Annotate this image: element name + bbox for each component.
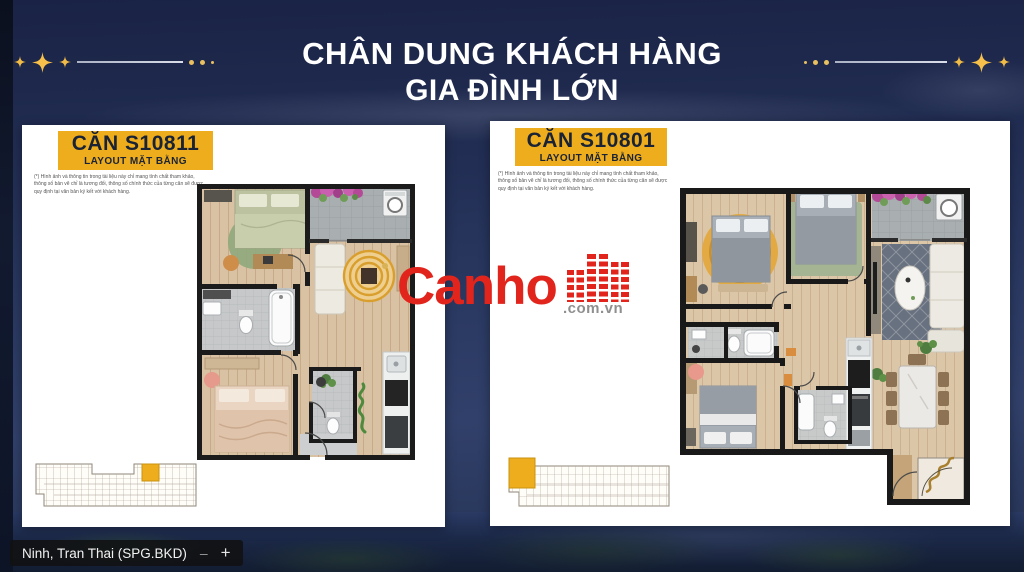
layout-label: LAYOUT MẶT BẰNG bbox=[540, 154, 643, 165]
star-icon bbox=[998, 56, 1010, 68]
unit-code: CĂN S10801 bbox=[527, 130, 656, 152]
bathtub bbox=[269, 290, 294, 346]
decoration-dot bbox=[824, 60, 829, 65]
decoration-dot bbox=[189, 60, 194, 65]
toilet bbox=[728, 329, 741, 352]
decoration-line bbox=[77, 61, 183, 63]
entry-floor bbox=[300, 434, 357, 455]
floor-plan-s10801 bbox=[680, 188, 970, 505]
unit-code: CĂN S10811 bbox=[72, 133, 200, 155]
coffee-table bbox=[361, 268, 377, 284]
laptop bbox=[263, 256, 273, 264]
canho-brand-text: Canho bbox=[397, 258, 557, 316]
wardrobe bbox=[685, 222, 697, 262]
shelf bbox=[203, 290, 231, 299]
canho-suffix-text: .com.vn bbox=[563, 300, 623, 317]
star-icon bbox=[971, 52, 992, 73]
wardrobe bbox=[204, 190, 232, 202]
bed bbox=[712, 216, 770, 282]
bedroom-2 bbox=[788, 192, 865, 276]
desk bbox=[686, 276, 697, 302]
floor-plan-s10811 bbox=[197, 184, 415, 460]
decoration-dot bbox=[804, 61, 807, 64]
sink bbox=[692, 330, 706, 339]
decor-basket bbox=[786, 348, 796, 356]
decor-rug bbox=[918, 458, 964, 500]
bathtub bbox=[798, 394, 814, 430]
toilet bbox=[327, 412, 340, 434]
background-left-edge bbox=[0, 0, 13, 572]
canho-watermark: Canho .com.vn bbox=[397, 252, 647, 324]
shower bbox=[316, 377, 326, 387]
unit-card-s10811: CĂN S10811 LAYOUT MẶT BẰNG (*) Hình ảnh … bbox=[22, 125, 445, 527]
page-title-line2: GIA ĐÌNH LỚN bbox=[0, 74, 1024, 108]
header-decoration-left bbox=[14, 51, 214, 73]
washing-machine bbox=[383, 190, 407, 216]
bed bbox=[215, 386, 289, 452]
entry-hall bbox=[892, 455, 964, 500]
sofa bbox=[315, 244, 345, 314]
console bbox=[784, 374, 792, 386]
star-icon bbox=[953, 56, 965, 68]
pink-ball bbox=[688, 364, 704, 380]
bed bbox=[700, 386, 756, 448]
disclaimer-line: thông số bản vẽ chỉ là tương đối, thông … bbox=[498, 178, 708, 185]
cooktop bbox=[848, 360, 870, 388]
slide-canvas: CHÂN DUNG KHÁCH HÀNG GIA ĐÌNH LỚN CĂN S1… bbox=[0, 0, 1024, 572]
fridge bbox=[385, 416, 408, 448]
decoration-dot bbox=[813, 60, 818, 65]
disclaimer-text: (*) Hình ảnh và thông tin trong tài liệu… bbox=[498, 171, 708, 193]
bathtub bbox=[744, 330, 774, 356]
star-icon bbox=[59, 56, 71, 68]
decoration-dot bbox=[200, 60, 205, 65]
bed bbox=[235, 190, 307, 248]
decor bbox=[382, 263, 388, 269]
decoration-dot bbox=[211, 61, 214, 64]
dining-table bbox=[899, 366, 936, 428]
toilet bbox=[824, 416, 837, 437]
chair bbox=[698, 284, 708, 294]
toilet bbox=[239, 310, 253, 334]
building-column bbox=[611, 262, 629, 302]
washing-machine bbox=[936, 194, 962, 220]
unit-badge: CĂN S10811 LAYOUT MẶT BẰNG bbox=[58, 131, 213, 170]
star-icon bbox=[14, 56, 26, 68]
zoom-in-button[interactable]: + bbox=[221, 543, 231, 563]
sink bbox=[832, 394, 844, 404]
building-column bbox=[567, 270, 584, 302]
cooktop bbox=[385, 380, 408, 406]
highlighted-unit bbox=[142, 464, 159, 481]
header-decoration-right bbox=[804, 51, 1010, 73]
stool bbox=[223, 255, 239, 271]
presenter-bar[interactable]: Ninh, Tran Thai (SPG.BKD) – + bbox=[10, 540, 243, 566]
coffee-table bbox=[895, 266, 925, 310]
tv bbox=[873, 262, 877, 314]
zoom-out-button[interactable]: – bbox=[200, 545, 208, 561]
bed bbox=[796, 192, 856, 264]
highlighted-unit bbox=[509, 458, 535, 488]
star-icon bbox=[32, 52, 53, 73]
decoration-line bbox=[835, 61, 947, 63]
sofa bbox=[928, 244, 964, 352]
dresser bbox=[685, 428, 696, 446]
sink bbox=[203, 302, 221, 315]
floor-lamp bbox=[692, 345, 700, 353]
bench bbox=[718, 284, 768, 292]
unit-badge: CĂN S10801 LAYOUT MẶT BẰNG bbox=[515, 128, 667, 166]
building-column bbox=[587, 254, 608, 302]
key-plan-s10811 bbox=[32, 456, 202, 512]
buildings-icon bbox=[567, 254, 639, 302]
presenter-label: Ninh, Tran Thai (SPG.BKD) bbox=[22, 546, 187, 561]
disclaimer-line: quy định tại văn bản ký kết với khách hà… bbox=[498, 186, 708, 193]
balcony-doors bbox=[309, 239, 412, 243]
wardrobe bbox=[205, 358, 259, 369]
layout-label: LAYOUT MẶT BẰNG bbox=[84, 157, 187, 168]
key-plan-s10801 bbox=[505, 452, 675, 512]
